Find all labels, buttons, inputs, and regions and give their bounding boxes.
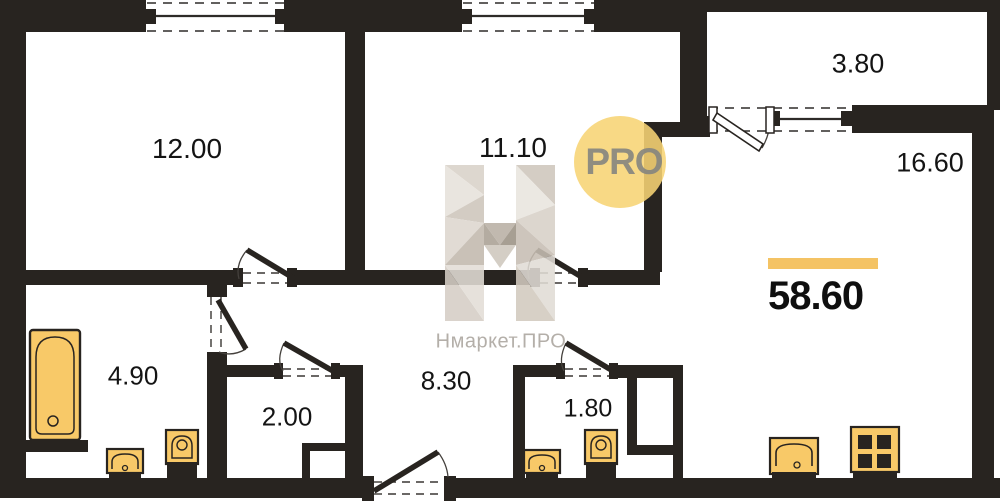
room-area-label-2.00: 2.00 — [262, 402, 313, 433]
stove-icon — [851, 427, 899, 479]
kitchen-sink-icon — [770, 438, 818, 479]
door-leaf — [218, 300, 246, 349]
room-area-label-4.90: 4.90 — [108, 361, 159, 392]
toilet-icon — [166, 430, 198, 478]
total-area-accent-bar — [768, 258, 878, 269]
windows-layer — [147, 3, 851, 131]
room-area-label-3.80: 3.80 — [832, 49, 885, 80]
pro-badge: PRO — [574, 116, 666, 208]
door-leaf — [374, 452, 438, 491]
floor-plan: PRO Нмаркет.ПРО 12.00 11.10 3.80 16.60 4… — [0, 0, 1000, 501]
balcony-door-leaf — [713, 113, 763, 151]
total-area-block: 58.60 — [768, 258, 878, 316]
sink-icon — [107, 449, 143, 479]
bathtub-icon — [30, 330, 80, 440]
watermark-h-icon — [445, 165, 555, 321]
total-area-label: 58.60 — [768, 276, 878, 316]
sink-icon — [524, 450, 560, 479]
room-area-label-1.80: 1.80 — [564, 395, 613, 424]
window-dashed-lines — [147, 3, 851, 131]
room-area-label-11.10: 11.10 — [479, 132, 547, 164]
door-leaf — [284, 343, 333, 371]
door-leaf — [247, 250, 295, 279]
room-area-label-16.60: 16.60 — [896, 148, 964, 179]
room-area-label-12.00: 12.00 — [152, 133, 222, 165]
watermark-text: Нмаркет.ПРО — [436, 331, 567, 354]
toilet-icon — [585, 430, 617, 478]
room-area-label-8.30: 8.30 — [421, 366, 472, 397]
pro-badge-label: PRO — [577, 141, 662, 183]
door-leaf — [566, 343, 613, 371]
